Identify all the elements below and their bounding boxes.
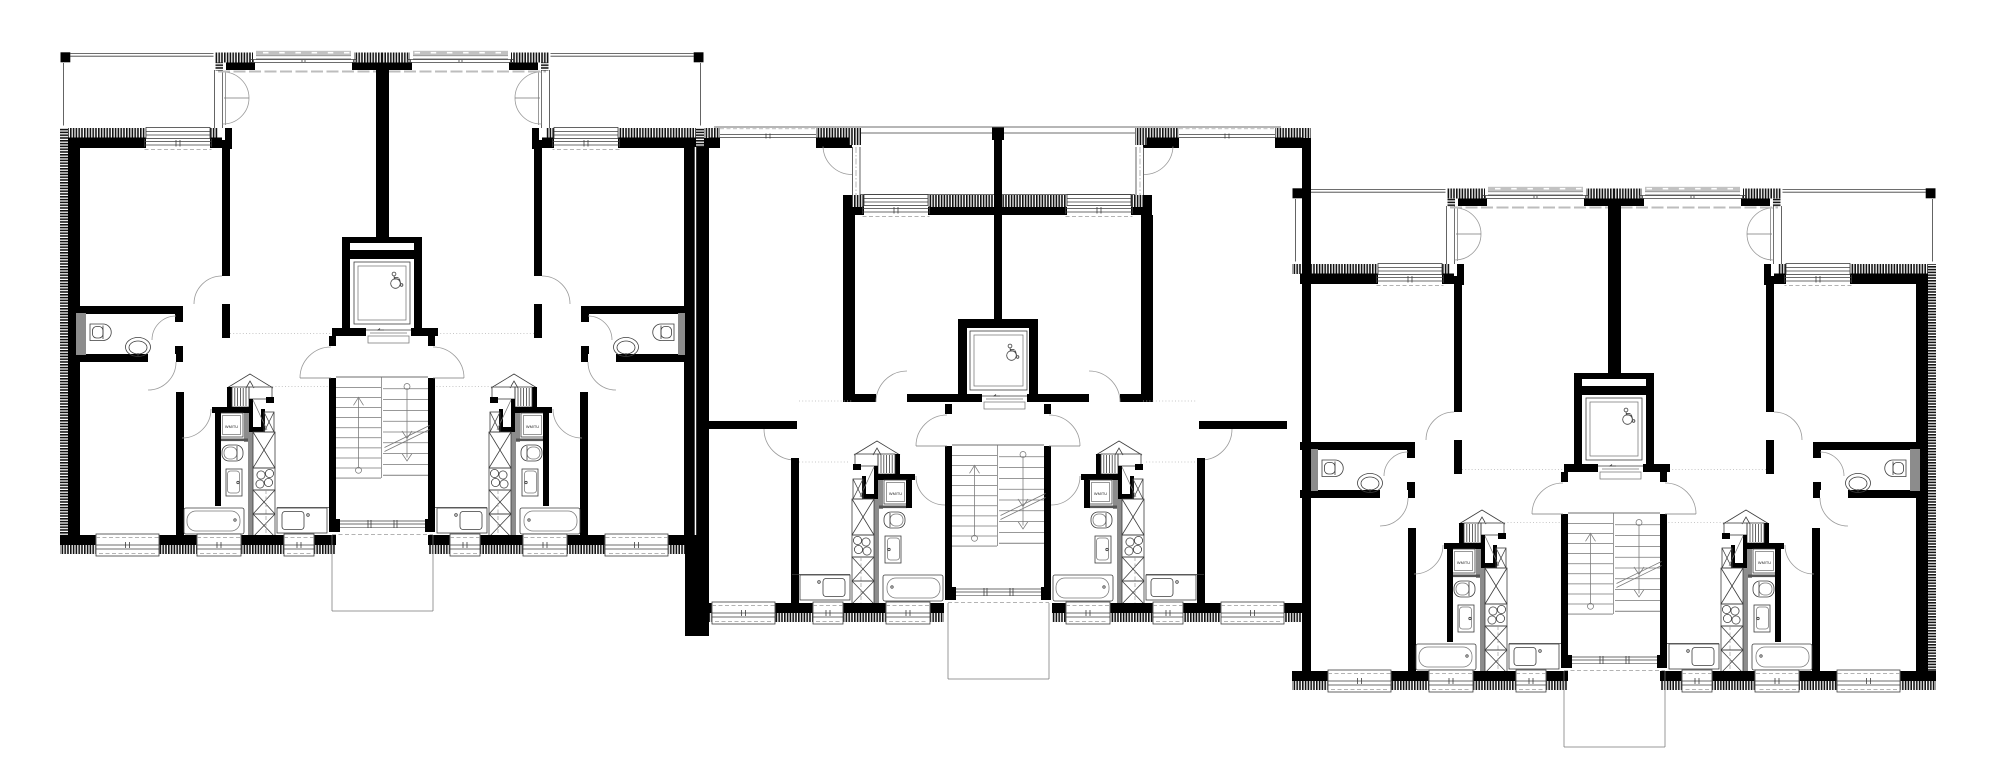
svg-text:WM/TU: WM/TU (1094, 491, 1107, 496)
svg-text:WM/TU: WM/TU (225, 424, 238, 429)
svg-text:WM/TU: WM/TU (1457, 560, 1470, 565)
svg-text:WM/TU: WM/TU (526, 424, 539, 429)
svg-text:WM/TU: WM/TU (1758, 560, 1771, 565)
svg-text:WM/TU: WM/TU (889, 491, 902, 496)
